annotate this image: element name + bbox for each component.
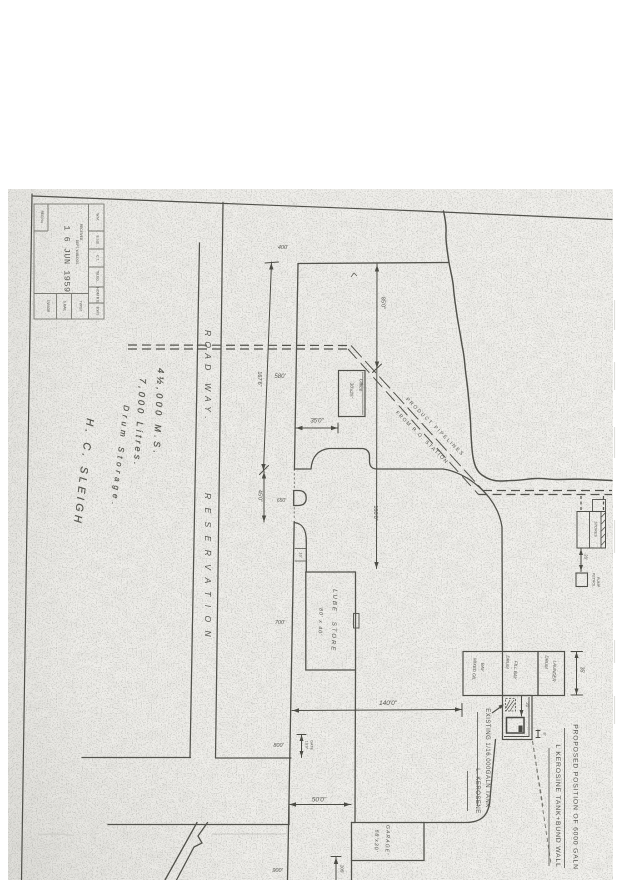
svg-text:580': 580' xyxy=(274,374,286,380)
svg-text:20': 20' xyxy=(584,554,589,560)
svg-text:Office: Office xyxy=(357,379,363,392)
svg-text:85'0": 85'0" xyxy=(380,297,386,309)
svg-text:45'0": 45'0" xyxy=(257,490,263,502)
svg-text:PUMP: PUMP xyxy=(596,577,600,588)
svg-text:35': 35' xyxy=(579,667,585,674)
svg-text:S'VISOR: S'VISOR xyxy=(46,300,50,313)
svg-text:140'0": 140'0" xyxy=(379,700,398,707)
svg-text:400': 400' xyxy=(278,245,289,251)
svg-text:EXISTING 1/16,000GALN TANK: EXISTING 1/16,000GALN TANK xyxy=(484,708,490,807)
svg-text:W.M.: W.M. xyxy=(96,213,100,220)
svg-text:50'0": 50'0" xyxy=(312,797,327,804)
svg-text:LUBE: LUBE xyxy=(331,589,338,613)
svg-text:L. KEROSENE: L. KEROSENE xyxy=(474,768,480,814)
svg-text:STORE: STORE xyxy=(329,622,336,653)
svg-text:BAY: BAY xyxy=(480,663,485,673)
svg-text:C.T.: C.T. xyxy=(96,255,100,261)
svg-text:700': 700' xyxy=(275,620,286,626)
svg-text:PROPOSED POSITION OF 6000 GALN: PROPOSED POSITION OF 6000 GALN xyxy=(572,724,579,870)
svg-text:E.S.B.: E.S.B. xyxy=(96,235,100,244)
svg-text:FILL.BAY: FILL.BAY xyxy=(512,661,518,681)
svg-text:68'x30': 68'x30' xyxy=(373,829,380,852)
svg-text:GATE: GATE xyxy=(310,740,314,751)
svg-text:DRUM: DRUM xyxy=(544,655,550,669)
svg-text:30'x25': 30'x25' xyxy=(348,382,355,398)
svg-text:S.MAIL: S.MAIL xyxy=(63,301,67,312)
svg-text:20': 20' xyxy=(525,702,530,708)
svg-text:RESERVATION: RESERVATION xyxy=(203,493,213,645)
svg-text:900': 900' xyxy=(272,868,283,874)
svg-text:35'0": 35'0" xyxy=(310,419,324,425)
svg-text:HOM R.E: HOM R.E xyxy=(96,287,100,303)
svg-text:DRUM: DRUM xyxy=(505,655,511,669)
svg-text:TYPIST: TYPIST xyxy=(79,300,83,311)
svg-text:PETROL: PETROL xyxy=(592,573,596,587)
svg-text:8': 8' xyxy=(543,733,548,736)
svg-text:ROAD WAY.: ROAD WAY. xyxy=(203,330,213,424)
svg-text:STORES: STORES xyxy=(594,521,598,537)
svg-text:167'6": 167'6" xyxy=(256,371,262,386)
svg-text:1 6 JUN 1959: 1 6 JUN 1959 xyxy=(62,225,72,292)
svg-text:10': 10' xyxy=(299,552,304,557)
svg-text:DEPT. W.BLDGS: DEPT. W.BLDGS xyxy=(75,240,79,264)
svg-text:L KEROSINE TANK+BUND WALL: L KEROSINE TANK+BUND WALL xyxy=(554,744,561,867)
svg-text:GARAGE': GARAGE' xyxy=(383,825,390,855)
svg-text:800': 800' xyxy=(273,743,284,749)
svg-text:REG.No.: REG.No. xyxy=(40,211,44,224)
svg-text:16'0": 16'0" xyxy=(305,741,309,750)
svg-text:650': 650' xyxy=(277,498,287,504)
svg-text:160'0": 160'0" xyxy=(372,505,378,520)
svg-text:RECEIVED: RECEIVED xyxy=(79,224,83,241)
svg-text:80' x 40': 80' x 40' xyxy=(317,608,324,636)
svg-text:B.W.S: B.W.S xyxy=(96,307,100,316)
svg-text:205': 205' xyxy=(340,865,345,874)
svg-text:TELEG.: TELEG. xyxy=(96,270,100,281)
